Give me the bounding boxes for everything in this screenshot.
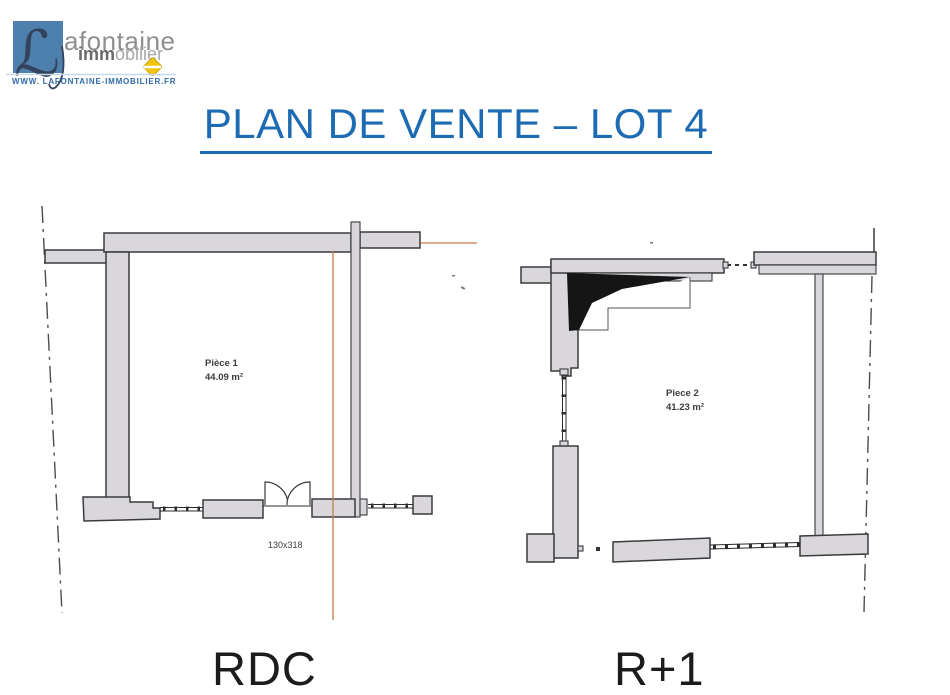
r1-door-dot [596,547,600,551]
r1-top-wall-left [551,259,724,273]
r1-bottom-left-footing [527,534,554,562]
rdc-room-name: Pièce 1 [205,358,238,369]
r1-left-stub-wall [521,267,552,283]
rdc-left-wall [106,252,129,500]
floorplans-drawing: Pièce 1 44.09 m² 130x318 [0,0,950,682]
rdc-bottom-pillar [360,499,367,515]
rdc-boundary-line [42,206,62,613]
floor-label-rdc: RDC [212,645,317,692]
rdc-bottom-wall-segment-1 [203,500,263,518]
rdc-top-wall [104,233,351,252]
r1-boundary-line [864,276,872,612]
floorplan-r1: Piece 2 41.23 m² [521,228,876,612]
r1-top-wall-right-inner [759,265,876,274]
r1-room-name: Piece 2 [666,388,699,399]
r1-bottom-wall-mid [613,538,710,562]
r1-bottom-right-block [800,534,868,556]
rdc-left-stub-wall [45,250,107,263]
floor-label-r1: R+1 [614,645,705,692]
r1-left-window [560,369,568,447]
rdc-double-door [263,482,312,506]
r1-door-tick [578,546,583,551]
rdc-bottom-right-block [413,496,432,514]
r1-bottom-left-wall [553,446,578,558]
r1-top-wall-right [754,252,876,265]
r1-top-door [723,262,756,268]
r1-bottom-window [710,543,800,550]
r1-room-area: 41.23 m² [666,402,704,413]
rdc-window-2 [368,505,413,509]
rdc-top-right-wall [360,232,420,248]
rdc-window-1 [160,508,203,512]
rdc-door-dimension: 130x318 [268,540,303,550]
rdc-right-thin-wall [351,222,360,517]
rdc-room-area: 44.09 m² [205,372,243,383]
floorplan-rdc: Pièce 1 44.09 m² 130x318 [42,206,477,620]
rdc-bottom-left-footing [83,497,160,521]
r1-interior-wall [815,274,823,540]
